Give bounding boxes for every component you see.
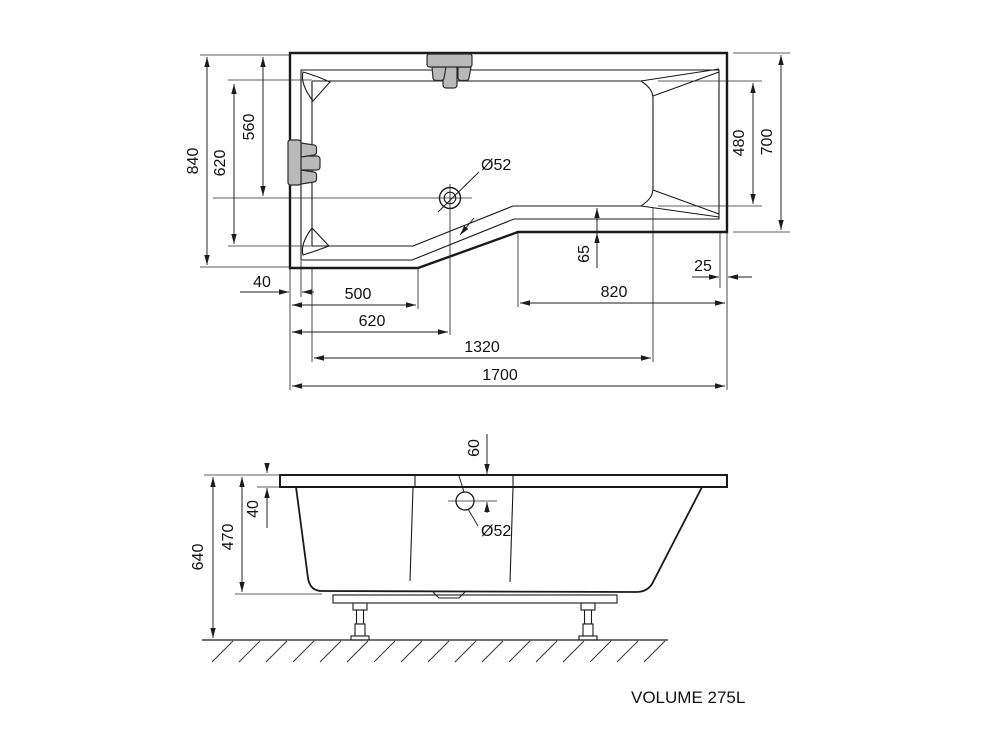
faucet-bracket-top bbox=[427, 54, 472, 88]
dimension-basin-floor-length: 1320 bbox=[314, 339, 651, 358]
support-leg-left bbox=[351, 603, 369, 640]
dimension-drain-from-top: 560 bbox=[241, 57, 263, 196]
svg-text:840: 840 bbox=[185, 148, 202, 175]
faucet-bracket-left bbox=[288, 140, 320, 185]
dimension-body-height: 470 bbox=[220, 477, 242, 592]
faucet-clip-icon bbox=[432, 67, 446, 81]
svg-text:60: 60 bbox=[466, 439, 483, 457]
ground-hatching bbox=[202, 640, 668, 662]
backrest-foot-line bbox=[641, 81, 653, 206]
corner-fillet-top-right bbox=[641, 69, 719, 96]
drain-symbol-top bbox=[438, 172, 479, 212]
svg-text:820: 820 bbox=[601, 284, 628, 301]
faucet-clip-icon bbox=[301, 143, 317, 157]
tub-rim-slab bbox=[280, 475, 727, 487]
svg-text:470: 470 bbox=[220, 524, 237, 551]
drain-diameter-label-top: Ø52 bbox=[481, 157, 511, 174]
svg-text:65: 65 bbox=[576, 245, 593, 263]
volume-label: VOLUME 275L bbox=[631, 688, 745, 707]
dimension-rim-bottom-right: 65 bbox=[576, 208, 597, 268]
dimension-drain-from-left: 620 bbox=[292, 313, 448, 332]
svg-text:40: 40 bbox=[245, 500, 262, 518]
svg-text:620: 620 bbox=[359, 313, 386, 330]
dimension-outer-width-left: 840 bbox=[185, 57, 207, 265]
dimension-rim-left: 40 bbox=[240, 274, 314, 292]
svg-text:1700: 1700 bbox=[482, 367, 518, 384]
dimension-rim-thickness: 40 bbox=[245, 463, 267, 528]
svg-text:500: 500 bbox=[345, 286, 372, 303]
dimension-overall-height: 640 bbox=[190, 477, 213, 638]
svg-text:560: 560 bbox=[241, 114, 258, 141]
dimension-basin-width-right: 480 bbox=[731, 83, 753, 204]
corner-fillet-bottom-left bbox=[302, 228, 329, 255]
technical-drawing-page: Ø52 bbox=[0, 0, 1000, 734]
svg-text:25: 25 bbox=[694, 258, 712, 275]
faucet-plate-icon bbox=[427, 54, 472, 67]
faucet-clip-icon bbox=[301, 170, 317, 184]
svg-text:700: 700 bbox=[759, 129, 776, 156]
dimension-overall-length: 1700 bbox=[292, 367, 725, 386]
corner-fillet-top-left bbox=[302, 72, 330, 101]
top-view: Ø52 bbox=[185, 53, 790, 390]
svg-text:640: 640 bbox=[190, 544, 207, 571]
dimension-basin-width-left: 620 bbox=[212, 84, 234, 244]
bathtub-dimension-drawing: Ø52 bbox=[0, 0, 1000, 734]
side-view: Ø52 60 640 470 40 bbox=[190, 434, 727, 662]
drain-diameter-label-side: Ø52 bbox=[481, 523, 511, 540]
faucet-clip-icon bbox=[458, 67, 471, 81]
svg-text:40: 40 bbox=[253, 274, 271, 291]
faucet-plate-icon bbox=[288, 140, 301, 185]
dimension-outer-width-right: 700 bbox=[759, 55, 781, 230]
svg-text:1320: 1320 bbox=[464, 339, 500, 356]
svg-text:620: 620 bbox=[212, 150, 229, 177]
dimension-rim-right: 25 bbox=[692, 258, 752, 277]
dimension-bottom-right-edge: 820 bbox=[520, 284, 725, 303]
support-leg-right bbox=[579, 603, 597, 640]
support-frame bbox=[333, 595, 617, 603]
svg-text:480: 480 bbox=[731, 130, 748, 157]
dimension-to-outer-bend: 500 bbox=[292, 286, 416, 305]
